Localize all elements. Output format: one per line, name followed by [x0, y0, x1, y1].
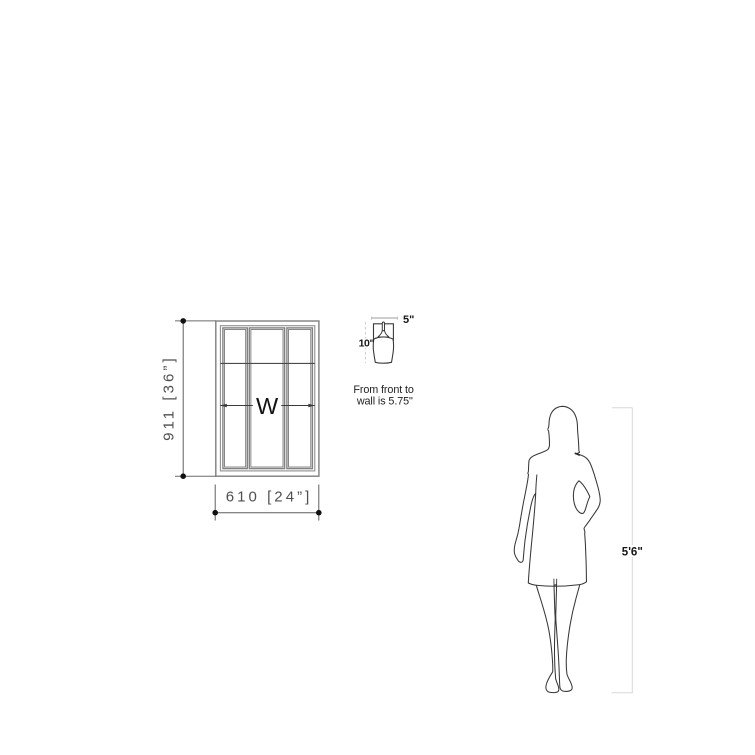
svg-text:wall is 5.75": wall is 5.75" — [356, 396, 413, 408]
svg-text:5": 5" — [403, 314, 414, 326]
svg-text:5'6": 5'6" — [622, 546, 643, 558]
svg-text:911 [36”]: 911 [36”] — [161, 355, 178, 441]
svg-text:610 [24”]: 610 [24”] — [226, 488, 313, 505]
svg-text:From front to: From front to — [353, 384, 414, 396]
svg-text:10": 10" — [359, 338, 375, 350]
svg-text:W: W — [256, 393, 279, 419]
